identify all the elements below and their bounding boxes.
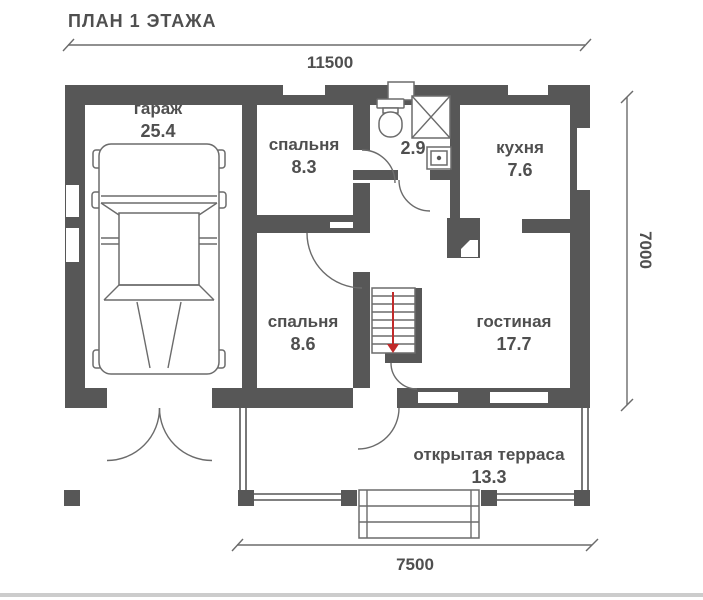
sink-icon	[427, 147, 451, 169]
bedroom2-label: спальня	[268, 312, 339, 331]
terrace-steps-icon	[359, 490, 479, 538]
understairs-door-arc	[391, 363, 417, 389]
dimension-top: 11500	[63, 39, 591, 72]
dimension-right: 7000	[621, 91, 655, 411]
dimension-bottom-value: 7500	[396, 555, 434, 574]
garage-door-left-arc	[107, 408, 160, 461]
kitchen-label: кухня	[496, 138, 544, 157]
garage-area: 25.4	[140, 121, 175, 141]
dimension-top-value: 11500	[307, 53, 353, 72]
floor-plan: ПЛАН 1 ЭТАЖА 11500 7000 7500	[0, 0, 703, 600]
garage-label: гараж	[134, 99, 183, 118]
bathroom-area: 2.9	[400, 138, 425, 158]
footer-divider	[0, 593, 703, 597]
terrace-label: открытая терраса	[413, 445, 565, 464]
kitchen-area: 7.6	[507, 160, 532, 180]
bedroom1-label: спальня	[269, 135, 340, 154]
toilet-icon	[377, 99, 404, 137]
dimension-right-value: 7000	[636, 231, 655, 269]
bathroom-door-arc	[399, 180, 430, 211]
shower-icon	[412, 96, 450, 138]
floor-plan-canvas: ПЛАН 1 ЭТАЖА 11500 7000 7500	[0, 0, 703, 600]
chimney-icon	[447, 218, 480, 258]
garage-door-right-arc	[160, 408, 213, 461]
living-label: гостиная	[477, 312, 552, 331]
terrace-door-arc	[358, 408, 399, 449]
corner-post	[64, 490, 80, 506]
living-area: 17.7	[496, 334, 531, 354]
bedroom2-area: 8.6	[290, 334, 315, 354]
dimension-bottom: 7500	[232, 539, 598, 574]
page-title: ПЛАН 1 ЭТАЖА	[68, 11, 217, 31]
terrace-area: 13.3	[471, 467, 506, 487]
vent-shaft-icon	[388, 82, 414, 100]
car-icon	[92, 144, 226, 374]
bedroom1-area: 8.3	[291, 157, 316, 177]
stairs-icon	[372, 288, 415, 353]
